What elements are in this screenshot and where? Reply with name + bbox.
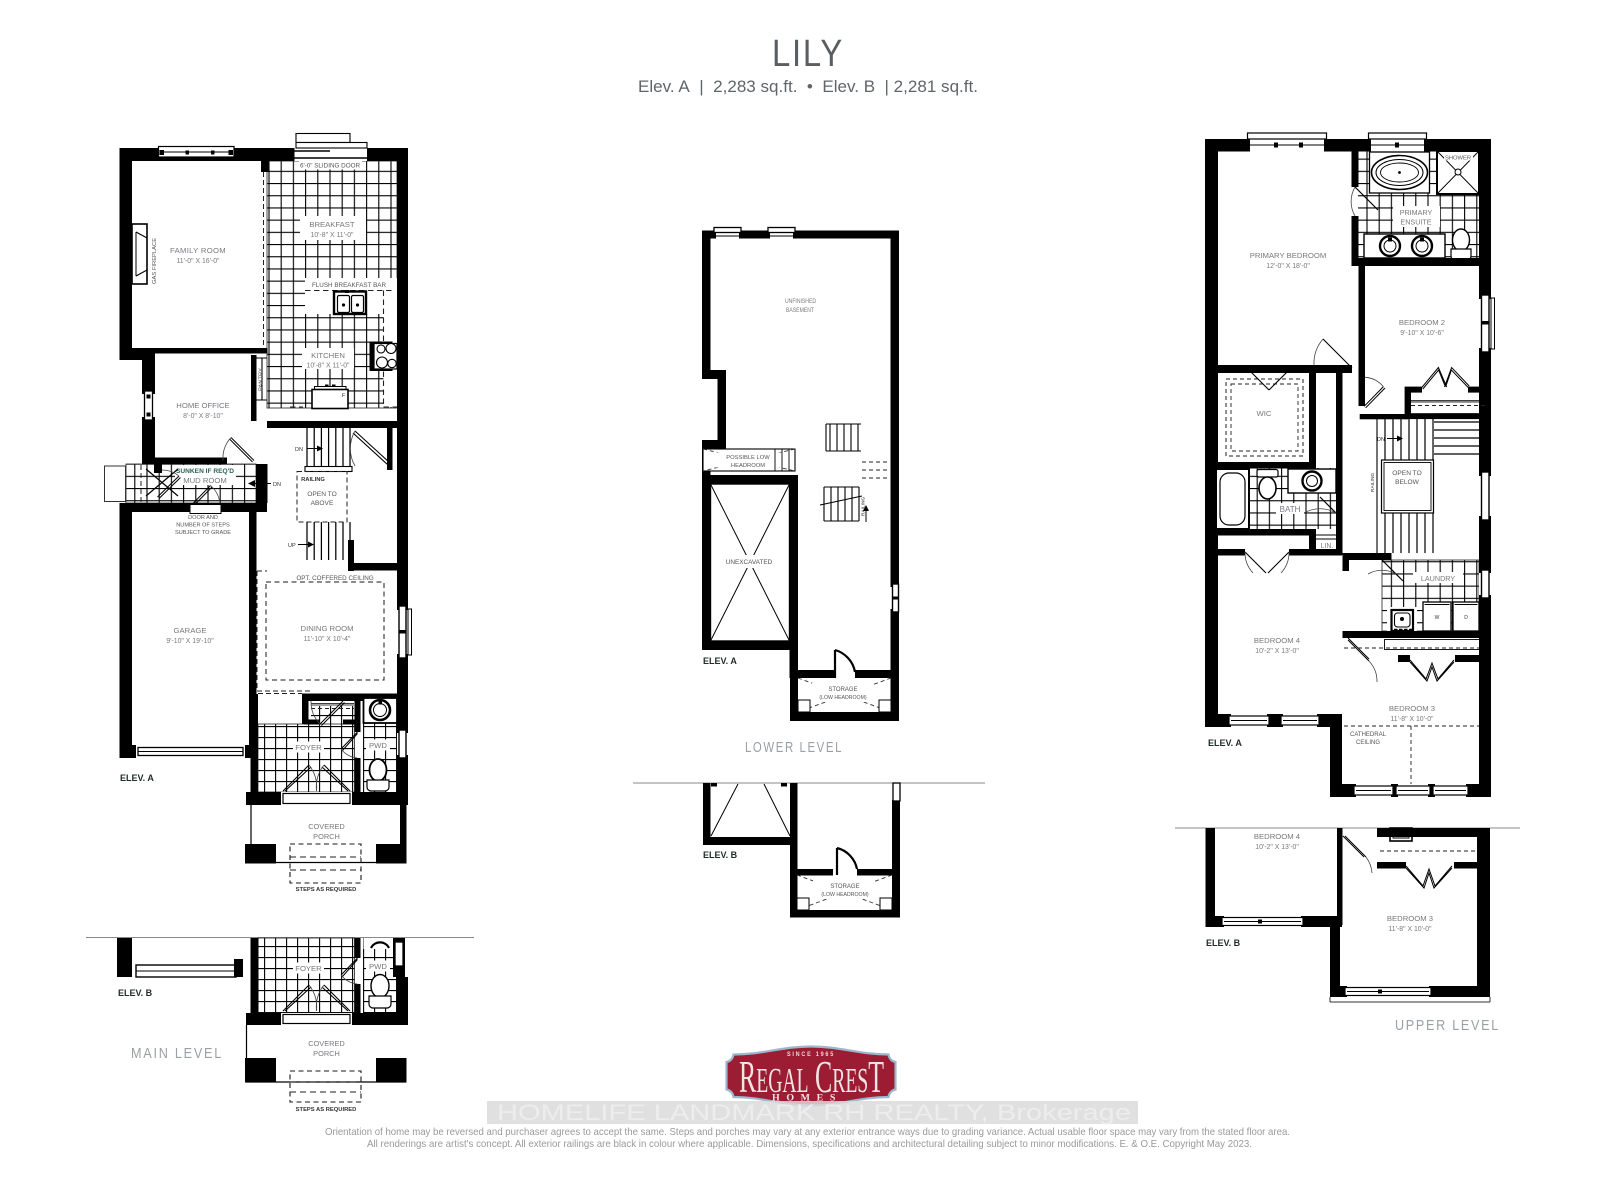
svg-text:RAILING: RAILING xyxy=(1370,473,1376,492)
svg-text:OPEN TO: OPEN TO xyxy=(1392,470,1421,477)
svg-text:BREAKFAST: BREAKFAST xyxy=(309,220,355,229)
svg-text:PRIMARY BEDROOM: PRIMARY BEDROOM xyxy=(1250,251,1327,260)
svg-text:All renderings are artist's co: All renderings are artist's concept. All… xyxy=(367,1139,1252,1150)
svg-text:BASEMENT: BASEMENT xyxy=(786,307,814,314)
svg-text:GAS FIREPLACE: GAS FIREPLACE xyxy=(152,238,158,284)
svg-text:UPPER LEVEL: UPPER LEVEL xyxy=(1395,1018,1500,1034)
svg-text:10'-8" X 11'-0": 10'-8" X 11'-0" xyxy=(310,232,354,239)
svg-text:SUNKEN IF REQ'D: SUNKEN IF REQ'D xyxy=(176,468,234,475)
svg-text:PORCH: PORCH xyxy=(313,1049,340,1058)
svg-text:ELEV. B: ELEV. B xyxy=(703,850,738,860)
svg-text:(LOW HEADROOM): (LOW HEADROOM) xyxy=(821,892,869,898)
svg-text:11'-10" X 10'-4": 11'-10" X 10'-4" xyxy=(304,636,351,643)
svg-text:W: W xyxy=(1435,615,1440,621)
svg-text:Elev. A | 2,283 sq.ft. • E: Elev. A | 2,283 sq.ft. • Elev. B | 2,281… xyxy=(638,78,978,96)
svg-text:BEDROOM 4: BEDROOM 4 xyxy=(1254,832,1301,841)
svg-text:COVERED: COVERED xyxy=(308,822,345,831)
svg-text:OPT. COFFERED CEILING: OPT. COFFERED CEILING xyxy=(296,575,373,582)
svg-text:CEILING: CEILING xyxy=(1356,740,1380,746)
svg-text:ENSUITE: ENSUITE xyxy=(1400,218,1431,227)
svg-text:ABOVE: ABOVE xyxy=(311,500,334,507)
svg-text:SUBJECT TO GRADE: SUBJECT TO GRADE xyxy=(175,530,231,536)
svg-text:6'-0" SLIDING DOOR: 6'-0" SLIDING DOOR xyxy=(300,163,361,170)
svg-text:CATHEDRAL: CATHEDRAL xyxy=(1350,732,1387,738)
svg-text:ELEV. B: ELEV. B xyxy=(1206,938,1241,948)
svg-text:STORAGE: STORAGE xyxy=(828,687,857,693)
svg-text:STEPS AS REQUIRED: STEPS AS REQUIRED xyxy=(296,887,357,893)
svg-text:PORCH: PORCH xyxy=(313,832,340,841)
svg-text:10'-2" X 13'-0": 10'-2" X 13'-0" xyxy=(1255,648,1299,655)
svg-text:DN: DN xyxy=(1377,437,1385,443)
svg-text:GARAGE: GARAGE xyxy=(174,626,207,635)
svg-text:(LOW HEADROOM): (LOW HEADROOM) xyxy=(819,695,867,701)
svg-text:D: D xyxy=(1464,615,1468,621)
svg-text:LOWER LEVEL: LOWER LEVEL xyxy=(745,740,843,756)
svg-text:SHOWER: SHOWER xyxy=(1445,156,1471,162)
svg-text:BEDROOM 4: BEDROOM 4 xyxy=(1254,636,1301,645)
svg-text:ELEV. A: ELEV. A xyxy=(120,773,154,783)
svg-text:ELEV. B: ELEV. B xyxy=(118,988,153,998)
svg-text:ELEV. A: ELEV. A xyxy=(703,656,737,666)
svg-text:PANTRY: PANTRY xyxy=(259,368,265,391)
svg-text:9'-10" X 19'-10": 9'-10" X 19'-10" xyxy=(166,638,214,645)
svg-text:UNFINISHED: UNFINISHED xyxy=(785,298,816,305)
svg-text:11'-0" X 16'-0": 11'-0" X 16'-0" xyxy=(176,258,220,265)
svg-text:MAIN LEVEL: MAIN LEVEL xyxy=(131,1046,223,1062)
svg-text:Orientation of home may be rev: Orientation of home may be reversed and … xyxy=(325,1127,1290,1138)
svg-text:UNEXCAVATED: UNEXCAVATED xyxy=(726,559,773,566)
svg-text:10'-2" X 13'-0": 10'-2" X 13'-0" xyxy=(1255,844,1299,851)
svg-text:BEDROOM 3: BEDROOM 3 xyxy=(1389,704,1435,713)
svg-text:8'-0" X 8'-10": 8'-0" X 8'-10" xyxy=(183,413,223,420)
svg-text:LAUNDRY: LAUNDRY xyxy=(1421,574,1455,583)
svg-text:HEADROOM: HEADROOM xyxy=(731,463,765,469)
svg-text:POSSIBLE LOW: POSSIBLE LOW xyxy=(726,455,770,461)
svg-text:BEDROOM 2: BEDROOM 2 xyxy=(1399,318,1445,327)
svg-text:MUD ROOM: MUD ROOM xyxy=(183,476,227,485)
svg-text:LIN.: LIN. xyxy=(1321,543,1334,550)
svg-text:FLUSH BREAKFAST BAR: FLUSH BREAKFAST BAR xyxy=(312,282,387,289)
svg-text:PWD: PWD xyxy=(369,741,387,750)
svg-text:DOOR AND: DOOR AND xyxy=(188,515,218,521)
svg-text:STEPS AS REQUIRED: STEPS AS REQUIRED xyxy=(296,1107,357,1113)
svg-text:RAILING: RAILING xyxy=(301,477,325,483)
svg-text:COVERED: COVERED xyxy=(308,1039,345,1048)
svg-text:HOMELIFE LANDMARK RH REALTY, B: HOMELIFE LANDMARK RH REALTY, Brokerage xyxy=(497,1100,1131,1125)
svg-text:KITCHEN: KITCHEN xyxy=(311,351,345,360)
svg-text:DN: DN xyxy=(273,482,281,488)
svg-text:LILY: LILY xyxy=(772,33,844,75)
svg-text:STORAGE: STORAGE xyxy=(830,884,859,890)
svg-text:BELOW: BELOW xyxy=(1395,479,1420,486)
svg-text:FOYER: FOYER xyxy=(295,964,322,973)
svg-text:11'-8" X 10'-0": 11'-8" X 10'-0" xyxy=(1388,926,1432,933)
svg-text:PRIMARY: PRIMARY xyxy=(1400,208,1433,217)
svg-text:11'-8" X 10'-0": 11'-8" X 10'-0" xyxy=(1390,716,1434,723)
svg-text:OPEN TO: OPEN TO xyxy=(307,491,336,498)
svg-text:BATH: BATH xyxy=(1280,505,1301,514)
svg-text:DINING ROOM: DINING ROOM xyxy=(301,624,354,633)
svg-text:HOME OFFICE: HOME OFFICE xyxy=(176,401,229,410)
svg-text:BEDROOM 3: BEDROOM 3 xyxy=(1387,914,1433,923)
svg-text:WIC: WIC xyxy=(1257,409,1272,418)
svg-text:FOYER: FOYER xyxy=(295,743,322,752)
svg-text:FAMILY ROOM: FAMILY ROOM xyxy=(170,246,226,255)
svg-text:NUMBER OF STEPS: NUMBER OF STEPS xyxy=(176,523,230,529)
svg-text:DN: DN xyxy=(295,447,303,453)
svg-text:UP: UP xyxy=(288,543,296,549)
svg-text:9'-10" X 10'-6": 9'-10" X 10'-6" xyxy=(1400,330,1444,337)
svg-text:10'-8" X 11'-0": 10'-8" X 11'-0" xyxy=(306,363,350,370)
svg-text:12'-0" X 18'-0": 12'-0" X 18'-0" xyxy=(1266,263,1310,270)
svg-text:ELEV. A: ELEV. A xyxy=(1208,738,1242,748)
svg-text:PWD: PWD xyxy=(369,962,387,971)
